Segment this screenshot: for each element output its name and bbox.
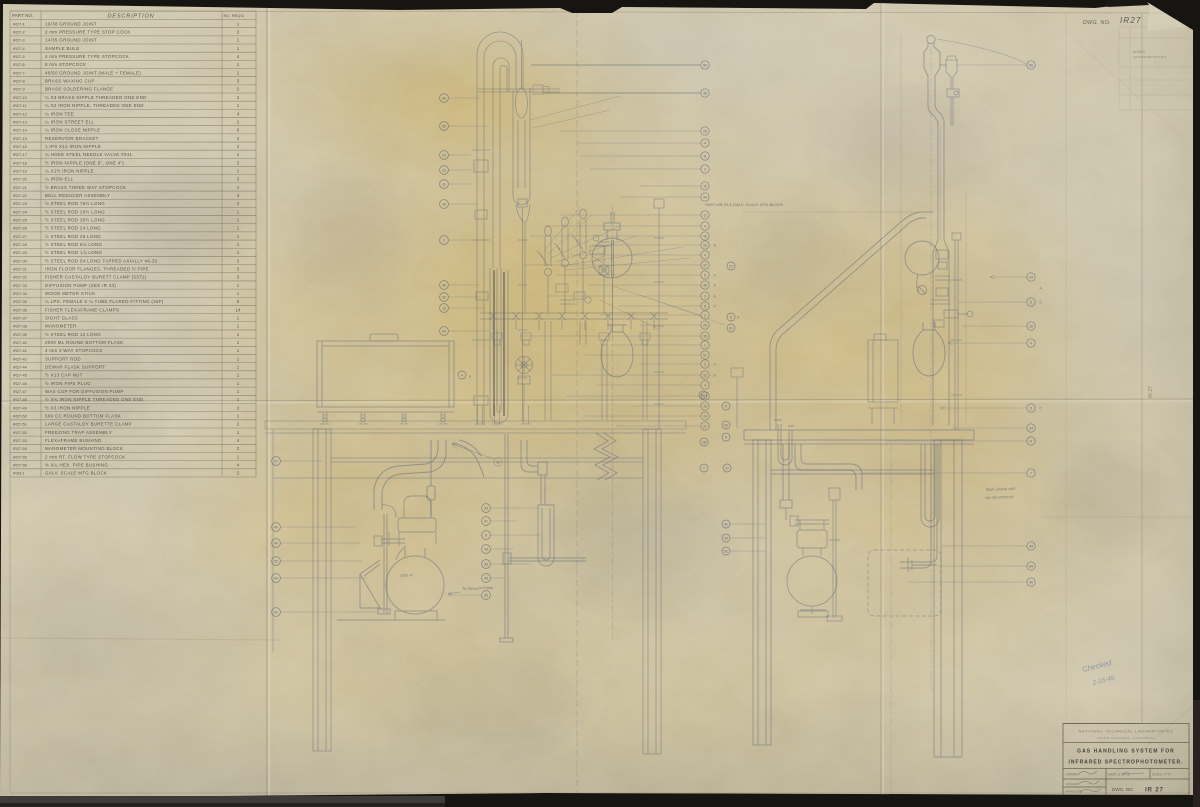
svg-text:BRASS SOLDERING FLANGE: BRASS SOLDERING FLANGE xyxy=(45,87,113,92)
svg-text:IR27-34: IR27-34 xyxy=(13,291,28,296)
svg-text:8: 8 xyxy=(730,315,732,319)
svg-text:SOUTH PASADENA, CALIFORNIA: SOUTH PASADENA, CALIFORNIA xyxy=(1097,736,1155,740)
svg-text:top rail removed: top rail removed xyxy=(985,494,1015,500)
svg-text:SCALE 1"=5": SCALE 1"=5" xyxy=(1152,773,1171,777)
svg-text:IR27-19: IR27-19 xyxy=(13,168,27,173)
svg-text:36: 36 xyxy=(484,562,488,566)
svg-text:NO. REQ’D: NO. REQ’D xyxy=(224,13,245,18)
svg-text:43: 43 xyxy=(484,547,488,551)
svg-text:IR27-52: IR27-52 xyxy=(13,430,27,435)
svg-text:½ STEEL ROD 35½ LONG: ½ STEEL ROD 35½ LONG xyxy=(45,217,105,222)
svg-text:FLEXAFRAME BUSHING: FLEXAFRAME BUSHING xyxy=(45,438,102,443)
svg-text:16: 16 xyxy=(442,202,446,206)
svg-text:43: 43 xyxy=(1029,544,1033,548)
svg-text:1: 1 xyxy=(704,343,706,347)
svg-text:½ X3 IRON NIPPLE: ½ X3 IRON NIPPLE xyxy=(45,405,90,410)
svg-text:13: 13 xyxy=(442,306,446,310)
svg-text:500 CC ROUND BOTTOM FLASK: 500 CC ROUND BOTTOM FLASK xyxy=(45,414,121,419)
svg-text:½ STEEL ROD 76½ LONG: ½ STEEL ROD 76½ LONG xyxy=(45,201,105,206)
svg-text:21: 21 xyxy=(703,424,707,428)
svg-text:IR27-3: IR27-3 xyxy=(13,38,25,43)
svg-text:IR27-55: IR27-55 xyxy=(13,454,27,459)
svg-text:IR27-37: IR27-37 xyxy=(13,315,27,320)
svg-text:IR27-5: IR27-5 xyxy=(13,54,25,59)
svg-text:¼ IRON STREET ELL: ¼ IRON STREET ELL xyxy=(45,119,95,124)
svg-text:¼ X2 IRON NIPPLE, THREADED ONE: ¼ X2 IRON NIPPLE, THREADED ONE END xyxy=(45,103,144,108)
svg-text:IR27-20: IR27-20 xyxy=(13,177,28,182)
svg-text:IR27-49: IR27-49 xyxy=(13,405,27,410)
svg-text:IR27-6: IR27-6 xyxy=(13,62,25,67)
svg-text:37: 37 xyxy=(703,263,707,267)
svg-text:24: 24 xyxy=(1029,426,1033,430)
svg-text:IR27-36: IR27-36 xyxy=(13,307,27,312)
svg-text:10/38 GROUND JOINT: 10/38 GROUND JOINT xyxy=(45,21,97,26)
svg-text:26: 26 xyxy=(703,323,707,327)
svg-text:DWG. NO.: DWG. NO. xyxy=(1112,787,1134,792)
svg-text:IR27-45: IR27-45 xyxy=(13,373,27,378)
svg-text:14: 14 xyxy=(236,307,241,312)
svg-text:¼ X3 BRASS NIPPLE THREADED ONE: ¼ X3 BRASS NIPPLE THREADED ONE END xyxy=(45,95,147,100)
svg-text:IR27-24: IR27-24 xyxy=(13,209,28,214)
svg-text:IR27-1: IR27-1 xyxy=(13,21,25,26)
svg-text:IR27-21: IR27-21 xyxy=(13,185,27,190)
svg-text:DWG. NO.: DWG. NO. xyxy=(1083,20,1111,26)
svg-text:9: 9 xyxy=(485,533,487,537)
svg-text:3: 3 xyxy=(704,294,706,298)
svg-text:FISHER FLEXAFRAME CLAMPS: FISHER FLEXAFRAME CLAMPS xyxy=(45,307,119,312)
svg-text:TRACED: TRACED xyxy=(1066,782,1079,786)
svg-text:BRASS WAXING CUP: BRASS WAXING CUP xyxy=(45,79,95,84)
svg-text:28: 28 xyxy=(703,129,707,133)
svg-text:IR27-30: IR27-30 xyxy=(13,258,28,263)
svg-text:10: 10 xyxy=(496,461,500,465)
svg-text:ADDED: ADDED xyxy=(1132,50,1145,54)
svg-text:DATE 11-24-48: DATE 11-24-48 xyxy=(1108,773,1130,777)
svg-text:PART #IR 33-1 GALV. SCALE MTG: PART #IR 33-1 GALV. SCALE MTG BLOCK xyxy=(705,202,783,207)
svg-text:12: 12 xyxy=(703,213,707,217)
svg-text:IR27-9: IR27-9 xyxy=(13,87,25,92)
svg-text:½ IRON NIPPLE (ONE 6", ONE 4"): ½ IRON NIPPLE (ONE 6", ONE 4") xyxy=(45,160,124,165)
svg-text:IR27-22: IR27-22 xyxy=(13,193,27,198)
svg-text:62: 62 xyxy=(724,423,728,427)
svg-text:4: 4 xyxy=(704,224,706,228)
svg-text:9: 9 xyxy=(1030,439,1032,443)
svg-text:PART NO.: PART NO. xyxy=(12,13,33,18)
svg-text:IR27-41: IR27-41 xyxy=(13,348,27,353)
svg-text:IR27-42: IR27-42 xyxy=(13,356,27,361)
svg-text:8 mm STOPCOCK: 8 mm STOPCOCK xyxy=(45,62,86,67)
svg-text:62: 62 xyxy=(729,326,733,330)
svg-text:IR27-54: IR27-54 xyxy=(13,446,28,451)
svg-text:SIGHT GLASS: SIGHT GLASS xyxy=(45,315,78,320)
svg-text:16: 16 xyxy=(703,404,707,408)
svg-text:IR27-11: IR27-11 xyxy=(13,103,27,108)
svg-text:IR27-27: IR27-27 xyxy=(13,234,27,239)
svg-text:IR27-47: IR27-47 xyxy=(13,389,27,394)
svg-text:26: 26 xyxy=(442,295,446,299)
svg-text:IR27-32: IR27-32 xyxy=(13,275,27,280)
svg-text:IR27-7: IR27-7 xyxy=(13,70,25,75)
svg-text:56: 56 xyxy=(1029,63,1033,67)
svg-text:27: 27 xyxy=(725,466,729,470)
svg-text:¼ HOKE STEEL NEEDLE VALVE #341: ¼ HOKE STEEL NEEDLE VALVE #341 xyxy=(45,152,132,157)
svg-text:2: 2 xyxy=(704,167,706,171)
svg-text:27: 27 xyxy=(274,459,278,463)
svg-text:23: 23 xyxy=(442,168,446,172)
svg-text:¼ IRON ELL: ¼ IRON ELL xyxy=(45,177,74,182)
svg-text:MANOMETER MTG BLK: MANOMETER MTG BLK xyxy=(1133,55,1168,59)
svg-text:41: 41 xyxy=(724,522,728,526)
svg-text:41: 41 xyxy=(484,519,488,523)
svg-text:IR27-14: IR27-14 xyxy=(13,128,28,133)
svg-text:29: 29 xyxy=(442,153,446,157)
svg-text:45: 45 xyxy=(484,576,488,580)
svg-text:IR27-15: IR27-15 xyxy=(13,136,27,141)
svg-text:35: 35 xyxy=(703,334,707,338)
svg-text:26: 26 xyxy=(1029,324,1033,328)
svg-text:3: 3 xyxy=(704,313,706,317)
svg-text:27: 27 xyxy=(729,264,733,268)
svg-text:2: 2 xyxy=(704,362,706,366)
svg-text:55: 55 xyxy=(442,124,446,128)
svg-text:DIFFUSION PUMP (SEE IR 33): DIFFUSION PUMP (SEE IR 33) xyxy=(45,283,116,288)
svg-text:IR27-53: IR27-53 xyxy=(13,438,27,443)
svg-text:½ STEEL ROD 20½ LONG: ½ STEEL ROD 20½ LONG xyxy=(45,209,105,214)
svg-text:52: 52 xyxy=(703,243,707,247)
svg-text:52: 52 xyxy=(274,559,278,563)
svg-text:41: 41 xyxy=(274,610,278,614)
svg-text:IR27-50: IR27-50 xyxy=(13,414,28,419)
svg-text:5: 5 xyxy=(704,304,706,308)
svg-text:IR27-8: IR27-8 xyxy=(13,79,25,84)
svg-text:1 IPS X12 IRON NIPPLE: 1 IPS X12 IRON NIPPLE xyxy=(45,144,101,149)
svg-text:24: 24 xyxy=(1029,275,1033,279)
svg-text:IR 27: IR 27 xyxy=(1145,787,1164,794)
svg-text:4: 4 xyxy=(1030,341,1032,345)
svg-text:IR27-48: IR27-48 xyxy=(13,397,27,402)
svg-text:35: 35 xyxy=(484,593,488,597)
svg-text:GAS HANDLING SYSTEM FOR: GAS HANDLING SYSTEM FOR xyxy=(1077,749,1175,755)
svg-text:IR27-23: IR27-23 xyxy=(13,201,27,206)
svg-text:GALV. SCALE MTG BLOCK: GALV. SCALE MTG BLOCK xyxy=(45,471,107,476)
svg-text:IR27-46: IR27-46 xyxy=(13,381,27,386)
svg-text:FISHER CASTALOY BURETT CLAMP (: FISHER CASTALOY BURETT CLAMP (5371) xyxy=(45,275,147,280)
svg-text:½ STEEL ROD 12 LONG: ½ STEEL ROD 12 LONG xyxy=(45,332,101,337)
svg-text:15: 15 xyxy=(703,184,707,188)
svg-text:INFRARED SPECTROPHOTOMETER.: INFRARED SPECTROPHOTOMETER. xyxy=(1069,760,1184,766)
svg-text:IR27-29: IR27-29 xyxy=(13,250,27,255)
svg-text:WOOD METER STICK: WOOD METER STICK xyxy=(45,291,95,296)
svg-text:½ STEEL ROD 26 LONG: ½ STEEL ROD 26 LONG xyxy=(45,234,101,239)
svg-text:DEWAR FLASK SUPPORT: DEWAR FLASK SUPPORT xyxy=(45,365,105,370)
svg-text:½ X13 CAP NUT: ½ X13 CAP NUT xyxy=(45,373,83,378)
svg-text:IR27-28: IR27-28 xyxy=(13,242,27,247)
svg-text:¼ LPS. FEMALE X ¼ TUBE FLARED: ¼ LPS. FEMALE X ¼ TUBE FLARED FITTING (4… xyxy=(45,299,164,304)
svg-text:SUPPORT ROD: SUPPORT ROD xyxy=(45,356,81,361)
svg-text:IR27-39: IR27-39 xyxy=(13,332,27,337)
svg-text:IR27-33: IR27-33 xyxy=(13,283,27,288)
svg-text:46: 46 xyxy=(442,283,446,287)
svg-text:½ STEEL ROD 54 LONG TAPPED AXI: ½ STEEL ROD 54 LONG TAPPED AXIALLY #6-32 xyxy=(45,258,158,263)
svg-text:40/50 GROUND JOINT (MALE + FEM: 40/50 GROUND JOINT (MALE + FEMALE) xyxy=(45,70,141,75)
svg-text:46: 46 xyxy=(442,96,446,100)
svg-text:½ IRON PIPE PLUG: ½ IRON PIPE PLUG xyxy=(45,381,91,386)
svg-text:44: 44 xyxy=(274,576,278,580)
svg-text:SAMPLE BULB: SAMPLE BULB xyxy=(45,46,79,51)
svg-text:2 mm PRESSURE TYPE STOP COCK: 2 mm PRESSURE TYPE STOP COCK xyxy=(45,30,131,35)
svg-text:IR27-51: IR27-51 xyxy=(13,422,27,427)
svg-text:¼ IRON TEE: ¼ IRON TEE xyxy=(45,111,74,116)
svg-text:39: 39 xyxy=(484,506,488,510)
svg-text:IR27-16: IR27-16 xyxy=(13,144,27,149)
svg-text:14/35 GROUND JOINT: 14/35 GROUND JOINT xyxy=(45,38,97,43)
svg-text:7: 7 xyxy=(1030,471,1032,475)
svg-text:RESERVOIR BRACKET: RESERVOIR BRACKET xyxy=(45,136,99,141)
svg-text:IR27-25: IR27-25 xyxy=(13,217,27,222)
svg-text:5: 5 xyxy=(1030,300,1032,304)
svg-text:IR27-2: IR27-2 xyxy=(13,30,25,35)
svg-text:11: 11 xyxy=(703,154,707,158)
svg-text:IR27-56: IR27-56 xyxy=(13,463,27,468)
svg-text:4 mm 3 WAY STOPCOCK: 4 mm 3 WAY STOPCOCK xyxy=(45,348,103,353)
svg-text:4: 4 xyxy=(461,373,463,377)
svg-text:IR27-13: IR27-13 xyxy=(13,119,27,124)
svg-text:½ STEEL ROD 24 LONG: ½ STEEL ROD 24 LONG xyxy=(45,226,101,231)
svg-text:50: 50 xyxy=(703,63,707,67)
svg-text:4: 4 xyxy=(704,141,706,145)
svg-text:41: 41 xyxy=(442,182,446,186)
svg-text:WAX CUP FOR DIFFUSION PUMP: WAX CUP FOR DIFFUSION PUMP xyxy=(45,389,124,394)
svg-text:IR27-35: IR27-35 xyxy=(13,299,27,304)
svg-text:½ STEEL ROD 1⅞ LONG: ½ STEEL ROD 1⅞ LONG xyxy=(45,250,102,255)
svg-text:IR27-26: IR27-26 xyxy=(13,226,27,231)
svg-text:34: 34 xyxy=(724,536,728,540)
svg-text:IRON FLOOR FLANGES, THREADED ½: IRON FLOOR FLANGES, THREADED ½ PIPE xyxy=(45,266,149,271)
svg-text:IR27: IR27 xyxy=(1120,16,1142,25)
svg-text:NATIONAL TECHNICAL LABORATORIE: NATIONAL TECHNICAL LABORATORIES xyxy=(1079,729,1174,734)
svg-text:IR27-12: IR27-12 xyxy=(13,111,27,116)
svg-text:IR27-44: IR27-44 xyxy=(13,365,28,370)
svg-text:½ X¾ IRON NIPPLE THREADED ONE: ½ X¾ IRON NIPPLE THREADED ONE END xyxy=(45,397,144,402)
svg-text:36: 36 xyxy=(703,91,707,95)
svg-text:MANOMETER: MANOMETER xyxy=(45,324,77,329)
svg-text:IR27-31: IR27-31 xyxy=(13,266,27,271)
svg-text:64: 64 xyxy=(1029,564,1033,568)
svg-text:MANOMETER MOUNTING BLOCK: MANOMETER MOUNTING BLOCK xyxy=(45,446,123,451)
svg-text:44: 44 xyxy=(703,195,707,199)
svg-text:44: 44 xyxy=(442,329,446,333)
svg-text:LARGE CASTALOY BURETTE CLAMP: LARGE CASTALOY BURETTE CLAMP xyxy=(45,422,132,427)
svg-text:FREEZING TRAP ASSEMBLY: FREEZING TRAP ASSEMBLY xyxy=(45,430,112,435)
svg-text:28: 28 xyxy=(702,440,706,444)
svg-text:2000 ML ROUND BOTTOM FLASK: 2000 ML ROUND BOTTOM FLASK xyxy=(45,340,123,345)
svg-text:IR27-17: IR27-17 xyxy=(13,152,27,157)
svg-text:4: 4 xyxy=(704,383,706,387)
svg-text:IR27-10: IR27-10 xyxy=(13,95,28,100)
svg-text:DRAWN: DRAWN xyxy=(1066,773,1079,777)
svg-text:48: 48 xyxy=(703,283,707,287)
svg-text:¼ IRON CLOSE NIPPLE: ¼ IRON CLOSE NIPPLE xyxy=(45,128,100,133)
svg-text:BELL REDUCER ASSEMBLY: BELL REDUCER ASSEMBLY xyxy=(45,193,110,198)
svg-text:APPROVED: APPROVED xyxy=(1066,790,1084,794)
svg-text:4 mm PRESSURE TYPE STOPCOCK: 4 mm PRESSURE TYPE STOPCOCK xyxy=(45,54,129,59)
svg-text:IR27-18: IR27-18 xyxy=(13,160,27,165)
svg-text:24: 24 xyxy=(703,414,707,418)
svg-text:5: 5 xyxy=(1030,406,1032,410)
svg-text:5: 5 xyxy=(725,404,727,408)
svg-text:IR 27: IR 27 xyxy=(1148,386,1154,398)
svg-text:IR27-40: IR27-40 xyxy=(13,340,28,345)
svg-text:IR27-38: IR27-38 xyxy=(13,324,27,329)
svg-text:52: 52 xyxy=(703,373,707,377)
svg-text:5: 5 xyxy=(704,273,706,277)
svg-text:45: 45 xyxy=(1029,580,1033,584)
svg-text:40: 40 xyxy=(703,234,707,238)
svg-text:51: 51 xyxy=(724,549,728,553)
svg-text:⅜ X¼ HEX. PIPE BUSHING: ⅜ X¼ HEX. PIPE BUSHING xyxy=(45,463,108,468)
svg-text:2 mm RT. FLOW TYPE STOPCOCK: 2 mm RT. FLOW TYPE STOPCOCK xyxy=(45,454,125,459)
svg-text:½ BRASS THREE WAY STOPCOCK: ½ BRASS THREE WAY STOPCOCK xyxy=(45,185,126,190)
svg-text:DESCRIPTION: DESCRIPTION xyxy=(107,14,154,20)
svg-text:40: 40 xyxy=(274,525,278,529)
svg-text:52: 52 xyxy=(701,393,705,397)
svg-text:IR33-1: IR33-1 xyxy=(13,471,25,476)
svg-text:¼ X1½ IRON NIPPLE: ¼ X1½ IRON NIPPLE xyxy=(45,168,94,173)
svg-text:½ STEEL ROD 6¾ LONG: ½ STEEL ROD 6¾ LONG xyxy=(45,242,102,247)
svg-text:8: 8 xyxy=(725,435,727,439)
svg-text:44: 44 xyxy=(274,541,278,545)
svg-text:IR27-4: IR27-4 xyxy=(13,46,26,51)
svg-text:51: 51 xyxy=(703,353,707,357)
svg-text:1: 1 xyxy=(443,238,445,242)
svg-text:4: 4 xyxy=(704,253,706,257)
svg-text:7: 7 xyxy=(703,466,705,470)
